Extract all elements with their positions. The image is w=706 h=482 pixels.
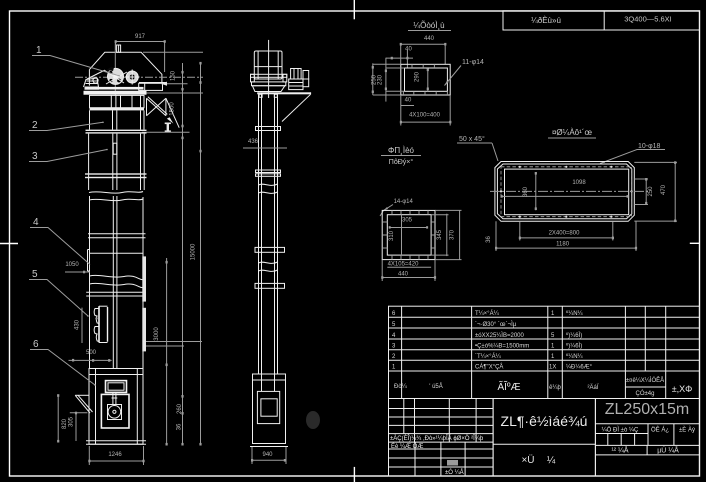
svg-text:µÚ ¼Å: µÚ ¼Å: [657, 446, 679, 455]
svg-text:±ÀÇ(ÈÎ)¼¾ ,Ðò»¹¼þÎÄ ϕØ×Ö ²Î¼þ: ±ÀÇ(ÈÎ)¼¾ ,Ðò»¹¼þÎÄ ϕØ×Ö ²Î¼þ: [390, 435, 484, 442]
svg-text:820: 820: [62, 418, 68, 429]
svg-text:1X: 1X: [549, 365, 556, 371]
svg-text:3: 3: [32, 151, 38, 162]
svg-text:50 x 45°: 50 x 45°: [459, 135, 485, 143]
svg-text:ÖÊ Á¿: ÖÊ Á¿: [651, 426, 669, 434]
svg-text:36: 36: [486, 236, 492, 243]
svg-text:ΠôÐý×°: ΠôÐý×°: [389, 158, 414, 166]
svg-text:360: 360: [523, 186, 529, 197]
svg-text:¼Ð¼6Æ°: ¼Ð¼6Æ°: [566, 365, 593, 371]
svg-text:3Q400—5.6ΧΙ: 3Q400—5.6ΧΙ: [624, 15, 672, 24]
svg-text:430: 430: [75, 319, 81, 330]
svg-text:6: 6: [33, 339, 39, 350]
svg-text:Éè ¼Æ ÖÆ: Éè ¼Æ ÖÆ: [391, 443, 423, 450]
svg-text:305: 305: [402, 218, 413, 224]
svg-text:¼ÕòóÌ¸ù: ¼ÕòóÌ¸ù: [413, 21, 444, 30]
svg-text:1180: 1180: [556, 241, 570, 247]
svg-text:917: 917: [135, 34, 146, 40]
svg-text:CÁ¶"X°ÇÅ: CÁ¶"X°ÇÅ: [475, 364, 503, 371]
svg-text:×Ü: ×Ü: [521, 454, 534, 466]
svg-text:310: 310: [389, 230, 395, 241]
svg-text:º¼Ν¼: º¼Ν¼: [566, 310, 584, 317]
svg-text:305: 305: [69, 416, 75, 427]
svg-text:Ðò¼: Ðò¼: [394, 384, 408, 390]
svg-text:±óXX25¼ÌB=2000: ±óXX25¼ÌB=2000: [475, 332, 524, 339]
svg-text:230: 230: [378, 74, 384, 85]
svg-text:4X105=420: 4X105=420: [388, 262, 420, 268]
svg-text:470: 470: [661, 184, 667, 195]
svg-text:940: 940: [262, 452, 273, 458]
svg-text:1246: 1246: [108, 452, 122, 458]
svg-text:36: 36: [177, 423, 183, 430]
svg-text:440: 440: [398, 271, 409, 277]
svg-text:3000: 3000: [154, 327, 160, 341]
svg-text:ÇÓ±4g: ÇÓ±4g: [636, 390, 655, 397]
svg-text:250: 250: [648, 186, 654, 197]
svg-text:º)¼6Ì): º)¼6Ì): [566, 343, 582, 350]
svg-text:´¬·Ø30° ´œ´¬Ìµ: ´¬·Ø30° ´œ´¬Ìµ: [475, 321, 517, 328]
svg-text:º)¼6Ì): º)¼6Ì): [566, 332, 582, 339]
svg-text:1500: 1500: [170, 102, 176, 116]
svg-text:10-φ18: 10-φ18: [638, 143, 661, 150]
svg-text:ZL250x15m: ZL250x15m: [605, 401, 690, 418]
svg-text:º¼Ν¼: º¼Ν¼: [566, 353, 584, 360]
svg-text:436: 436: [248, 139, 259, 145]
svg-text:15000: 15000: [191, 243, 197, 260]
svg-text:1098: 1098: [572, 180, 586, 186]
svg-text:ΦΠ¸Ìèó: ΦΠ¸Ìèó: [388, 146, 414, 155]
svg-text:¼Ö ÐÌ ±ò ¼Ç: ¼Ö ÐÌ ±ò ¼Ç: [602, 427, 639, 434]
svg-text:ê¼þ: ê¼þ: [549, 385, 561, 391]
svg-text:¼ðÈù»ú: ¼ðÈù»ú: [531, 16, 561, 25]
svg-text:5: 5: [32, 269, 38, 280]
svg-text:4: 4: [33, 217, 39, 228]
svg-text:±¤ê¼X¼ÌÓÊÅ: ±¤ê¼X¼ÌÓÊÅ: [626, 376, 664, 384]
svg-text:' ú5Å: ' ú5Å: [429, 383, 443, 390]
svg-text:•Ç±ó%¼B=1500mm: •Ç±ó%¼B=1500mm: [475, 344, 529, 350]
svg-text:370: 370: [450, 229, 456, 240]
svg-text:´Τ¼×°Á¼: ´Τ¼×°Á¼: [475, 353, 502, 360]
svg-text:14-φ14: 14-φ14: [394, 199, 414, 205]
svg-text:440: 440: [424, 36, 435, 42]
svg-text:290: 290: [415, 71, 421, 82]
svg-text:Τ¼×°Á¼: Τ¼×°Á¼: [475, 310, 500, 317]
svg-text:4X100=400: 4X100=400: [409, 113, 441, 119]
svg-text:2: 2: [32, 120, 38, 131]
svg-text:ÃĨºÆ: ÃĨºÆ: [497, 380, 520, 393]
svg-text:1: 1: [36, 45, 42, 56]
svg-text:500: 500: [86, 350, 97, 356]
svg-text:150: 150: [171, 70, 177, 81]
svg-text:±È Àý: ±È Àý: [679, 427, 695, 434]
svg-text:40: 40: [405, 47, 412, 53]
svg-text:²ÄáÏ: ²ÄáÏ: [587, 384, 598, 391]
svg-text:¤Ø¼Àô¹´œ: ¤Ø¼Àô¹´œ: [552, 128, 592, 137]
svg-text:¼: ¼: [547, 454, 556, 466]
svg-text:40: 40: [405, 98, 412, 104]
svg-text:11-φ14: 11-φ14: [462, 59, 484, 66]
svg-text:2X400=800: 2X400=800: [549, 231, 581, 237]
svg-text:1050: 1050: [65, 262, 79, 268]
svg-text:345: 345: [437, 229, 443, 240]
svg-text:¹² ¼Å: ¹² ¼Å: [611, 446, 628, 455]
svg-text:ZL¶·ê½ìáé¾ú: ZL¶·ê½ìáé¾ú: [501, 413, 588, 429]
svg-text:±Ó ¼Å: ±Ó ¼Å: [445, 469, 464, 476]
svg-text:±,XΦ: ±,XΦ: [672, 384, 693, 394]
